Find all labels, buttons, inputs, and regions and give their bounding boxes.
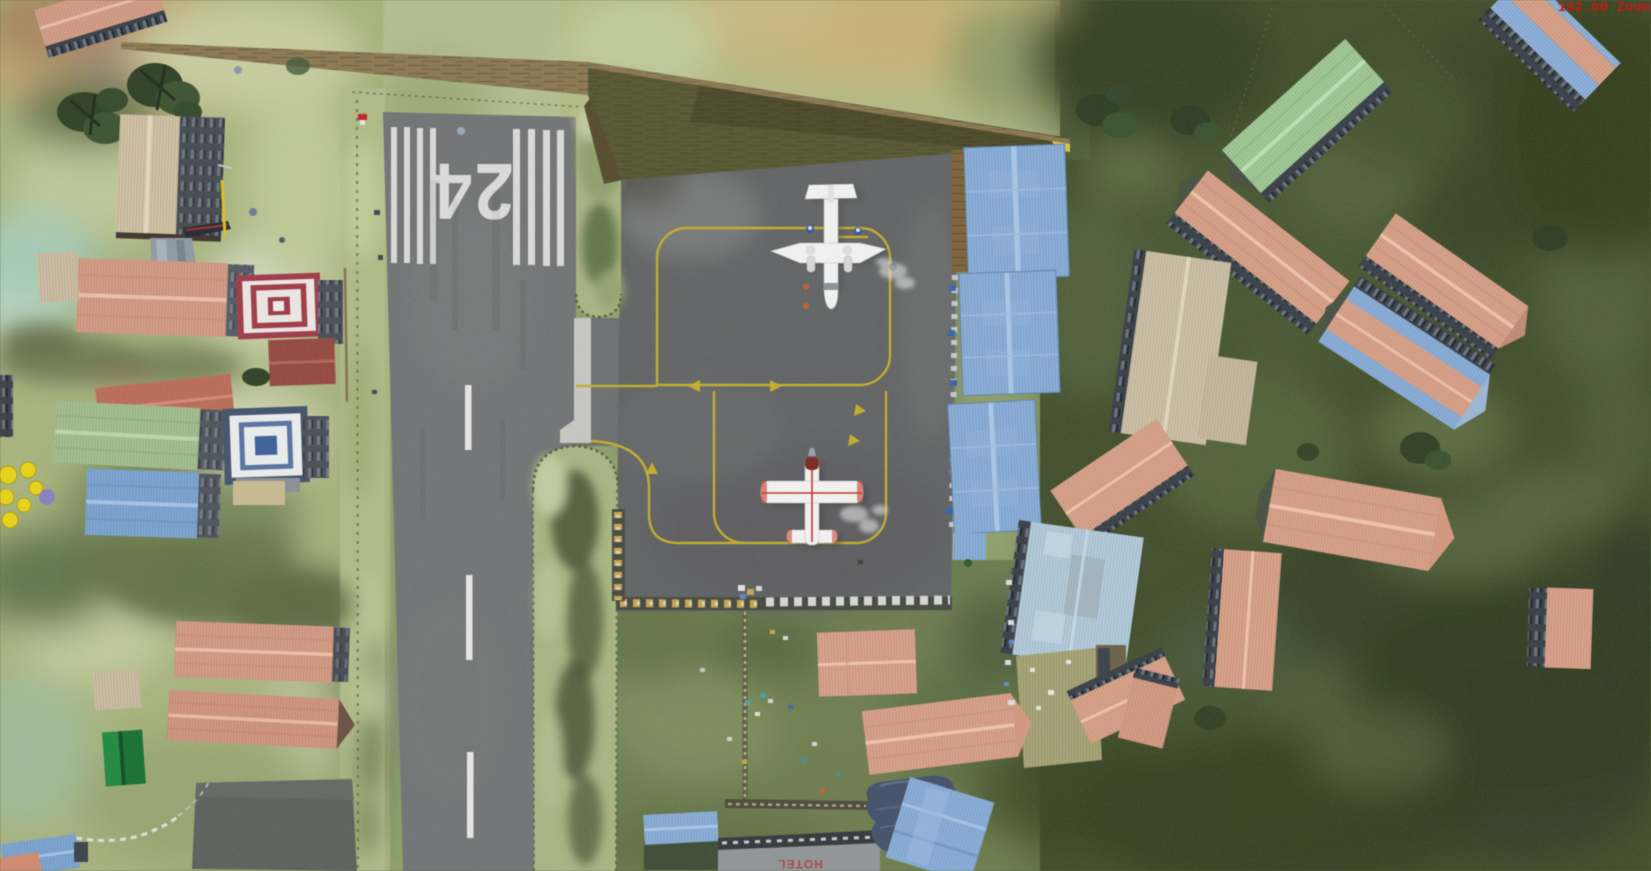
svg-text:192.00 Zoom: 192.00 Zoom [1558,0,1650,16]
